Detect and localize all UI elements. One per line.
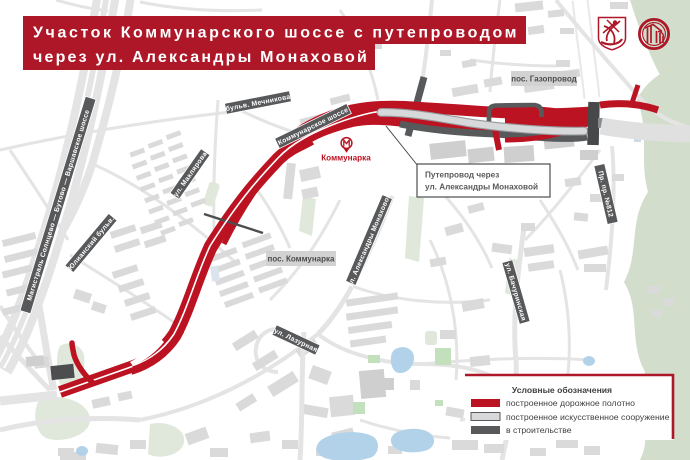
svg-text:в строительстве: в строительстве	[506, 425, 572, 435]
svg-text:Коммунарка: Коммунарка	[321, 154, 371, 163]
svg-text:Участок Коммунарского шоссе с: Участок Коммунарского шоссе с путепровод…	[33, 25, 519, 42]
svg-text:через ул. Александры Монаховой: через ул. Александры Монаховой	[33, 49, 369, 66]
svg-text:пос. Газопровод: пос. Газопровод	[511, 75, 576, 84]
svg-text:ул. Александры Монаховой: ул. Александры Монаховой	[425, 183, 538, 192]
svg-text:Условные обозначения: Условные обозначения	[512, 385, 612, 395]
svg-text:построенное дорожное полотно: построенное дорожное полотно	[506, 398, 635, 408]
svg-text:пос. Коммунарка: пос. Коммунарка	[268, 255, 336, 264]
svg-text:построенное искусственное соор: построенное искусственное сооружение	[506, 412, 670, 422]
svg-text:Путепровод через: Путепровод через	[425, 171, 499, 180]
